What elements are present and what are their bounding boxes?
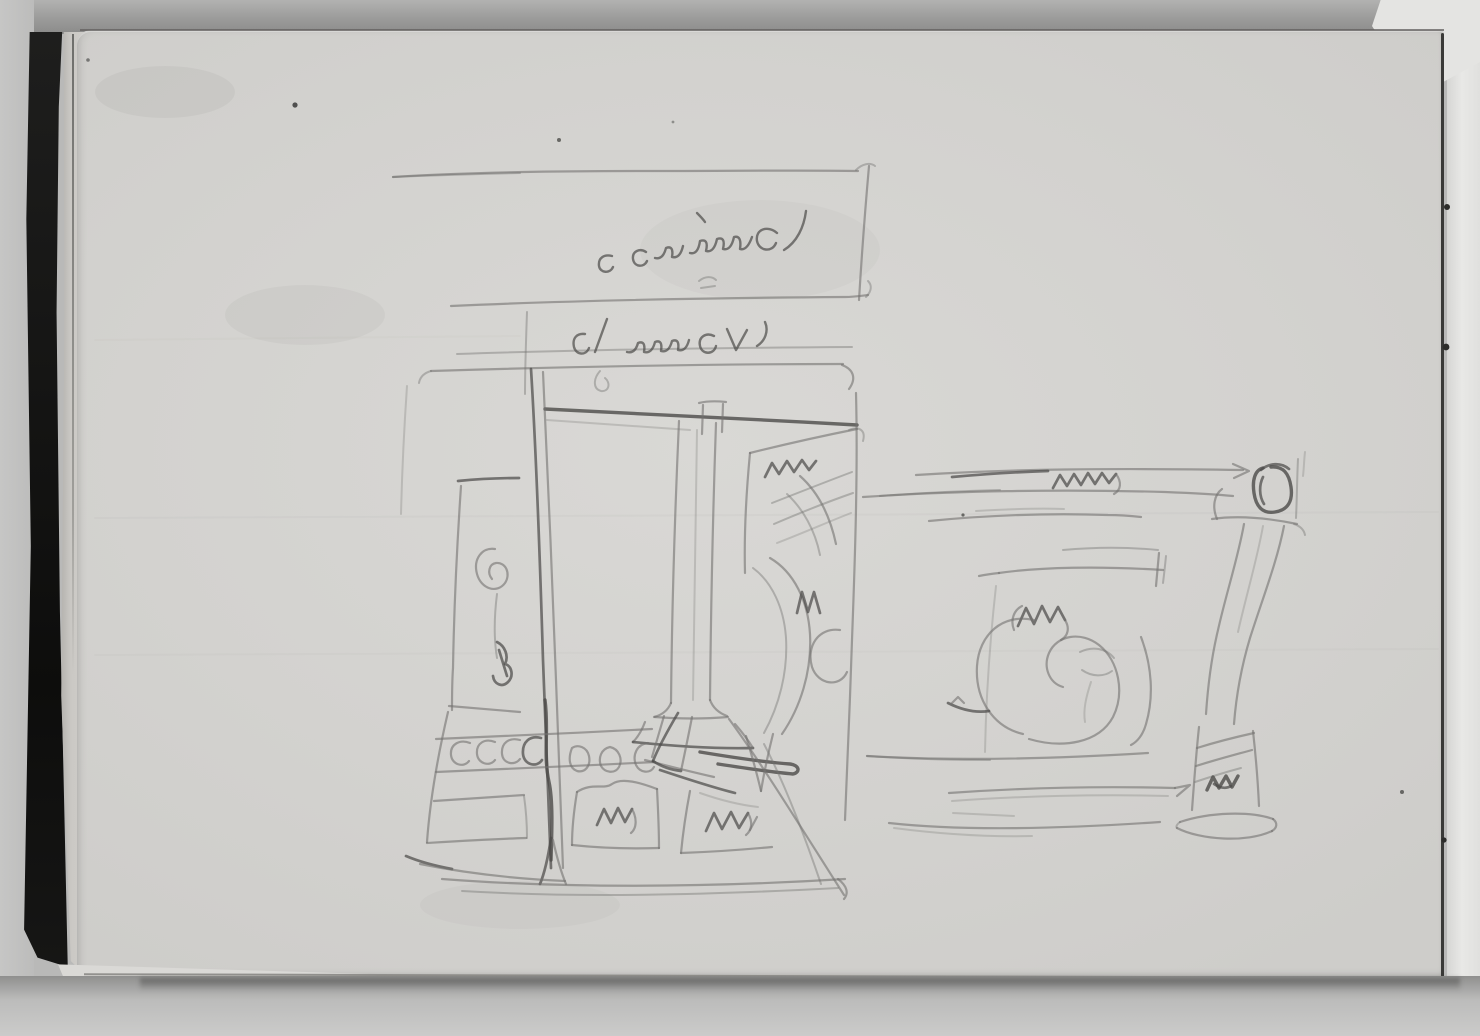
sketchbook-photo bbox=[0, 0, 1480, 1036]
page-gutter-line bbox=[72, 34, 74, 674]
page-top-edge bbox=[80, 29, 1444, 31]
next-page-edge bbox=[1447, 26, 1480, 978]
page-right-edge bbox=[1441, 33, 1444, 977]
sketchbook-page bbox=[77, 30, 1444, 978]
page-drop-shadow bbox=[140, 978, 1460, 991]
